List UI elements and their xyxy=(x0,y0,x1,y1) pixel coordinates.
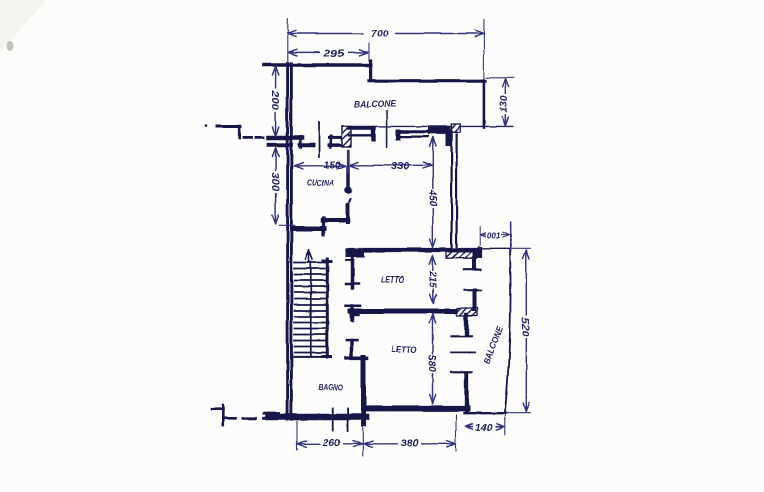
svg-text:260: 260 xyxy=(321,437,340,449)
svg-text:150: 150 xyxy=(324,159,341,171)
svg-text:001: 001 xyxy=(487,231,501,240)
svg-text:200: 200 xyxy=(269,90,281,110)
svg-text:130: 130 xyxy=(498,95,510,112)
svg-text:CUCINA: CUCINA xyxy=(307,178,334,188)
svg-text:700: 700 xyxy=(371,29,389,40)
svg-text:520: 520 xyxy=(519,318,531,337)
svg-text:140: 140 xyxy=(475,422,492,434)
svg-text:215: 215 xyxy=(427,270,439,288)
svg-text:330: 330 xyxy=(391,161,409,173)
svg-text:BAGNO: BAGNO xyxy=(318,382,343,392)
svg-text:295: 295 xyxy=(322,48,344,60)
svg-text:580: 580 xyxy=(426,355,438,372)
svg-text:300: 300 xyxy=(269,172,281,191)
svg-text:LETTO: LETTO xyxy=(391,345,417,355)
svg-text:380: 380 xyxy=(401,437,419,449)
svg-text:BALCONE: BALCONE xyxy=(354,99,397,110)
svg-text:450: 450 xyxy=(427,189,439,207)
svg-text:LETTO: LETTO xyxy=(382,275,405,285)
